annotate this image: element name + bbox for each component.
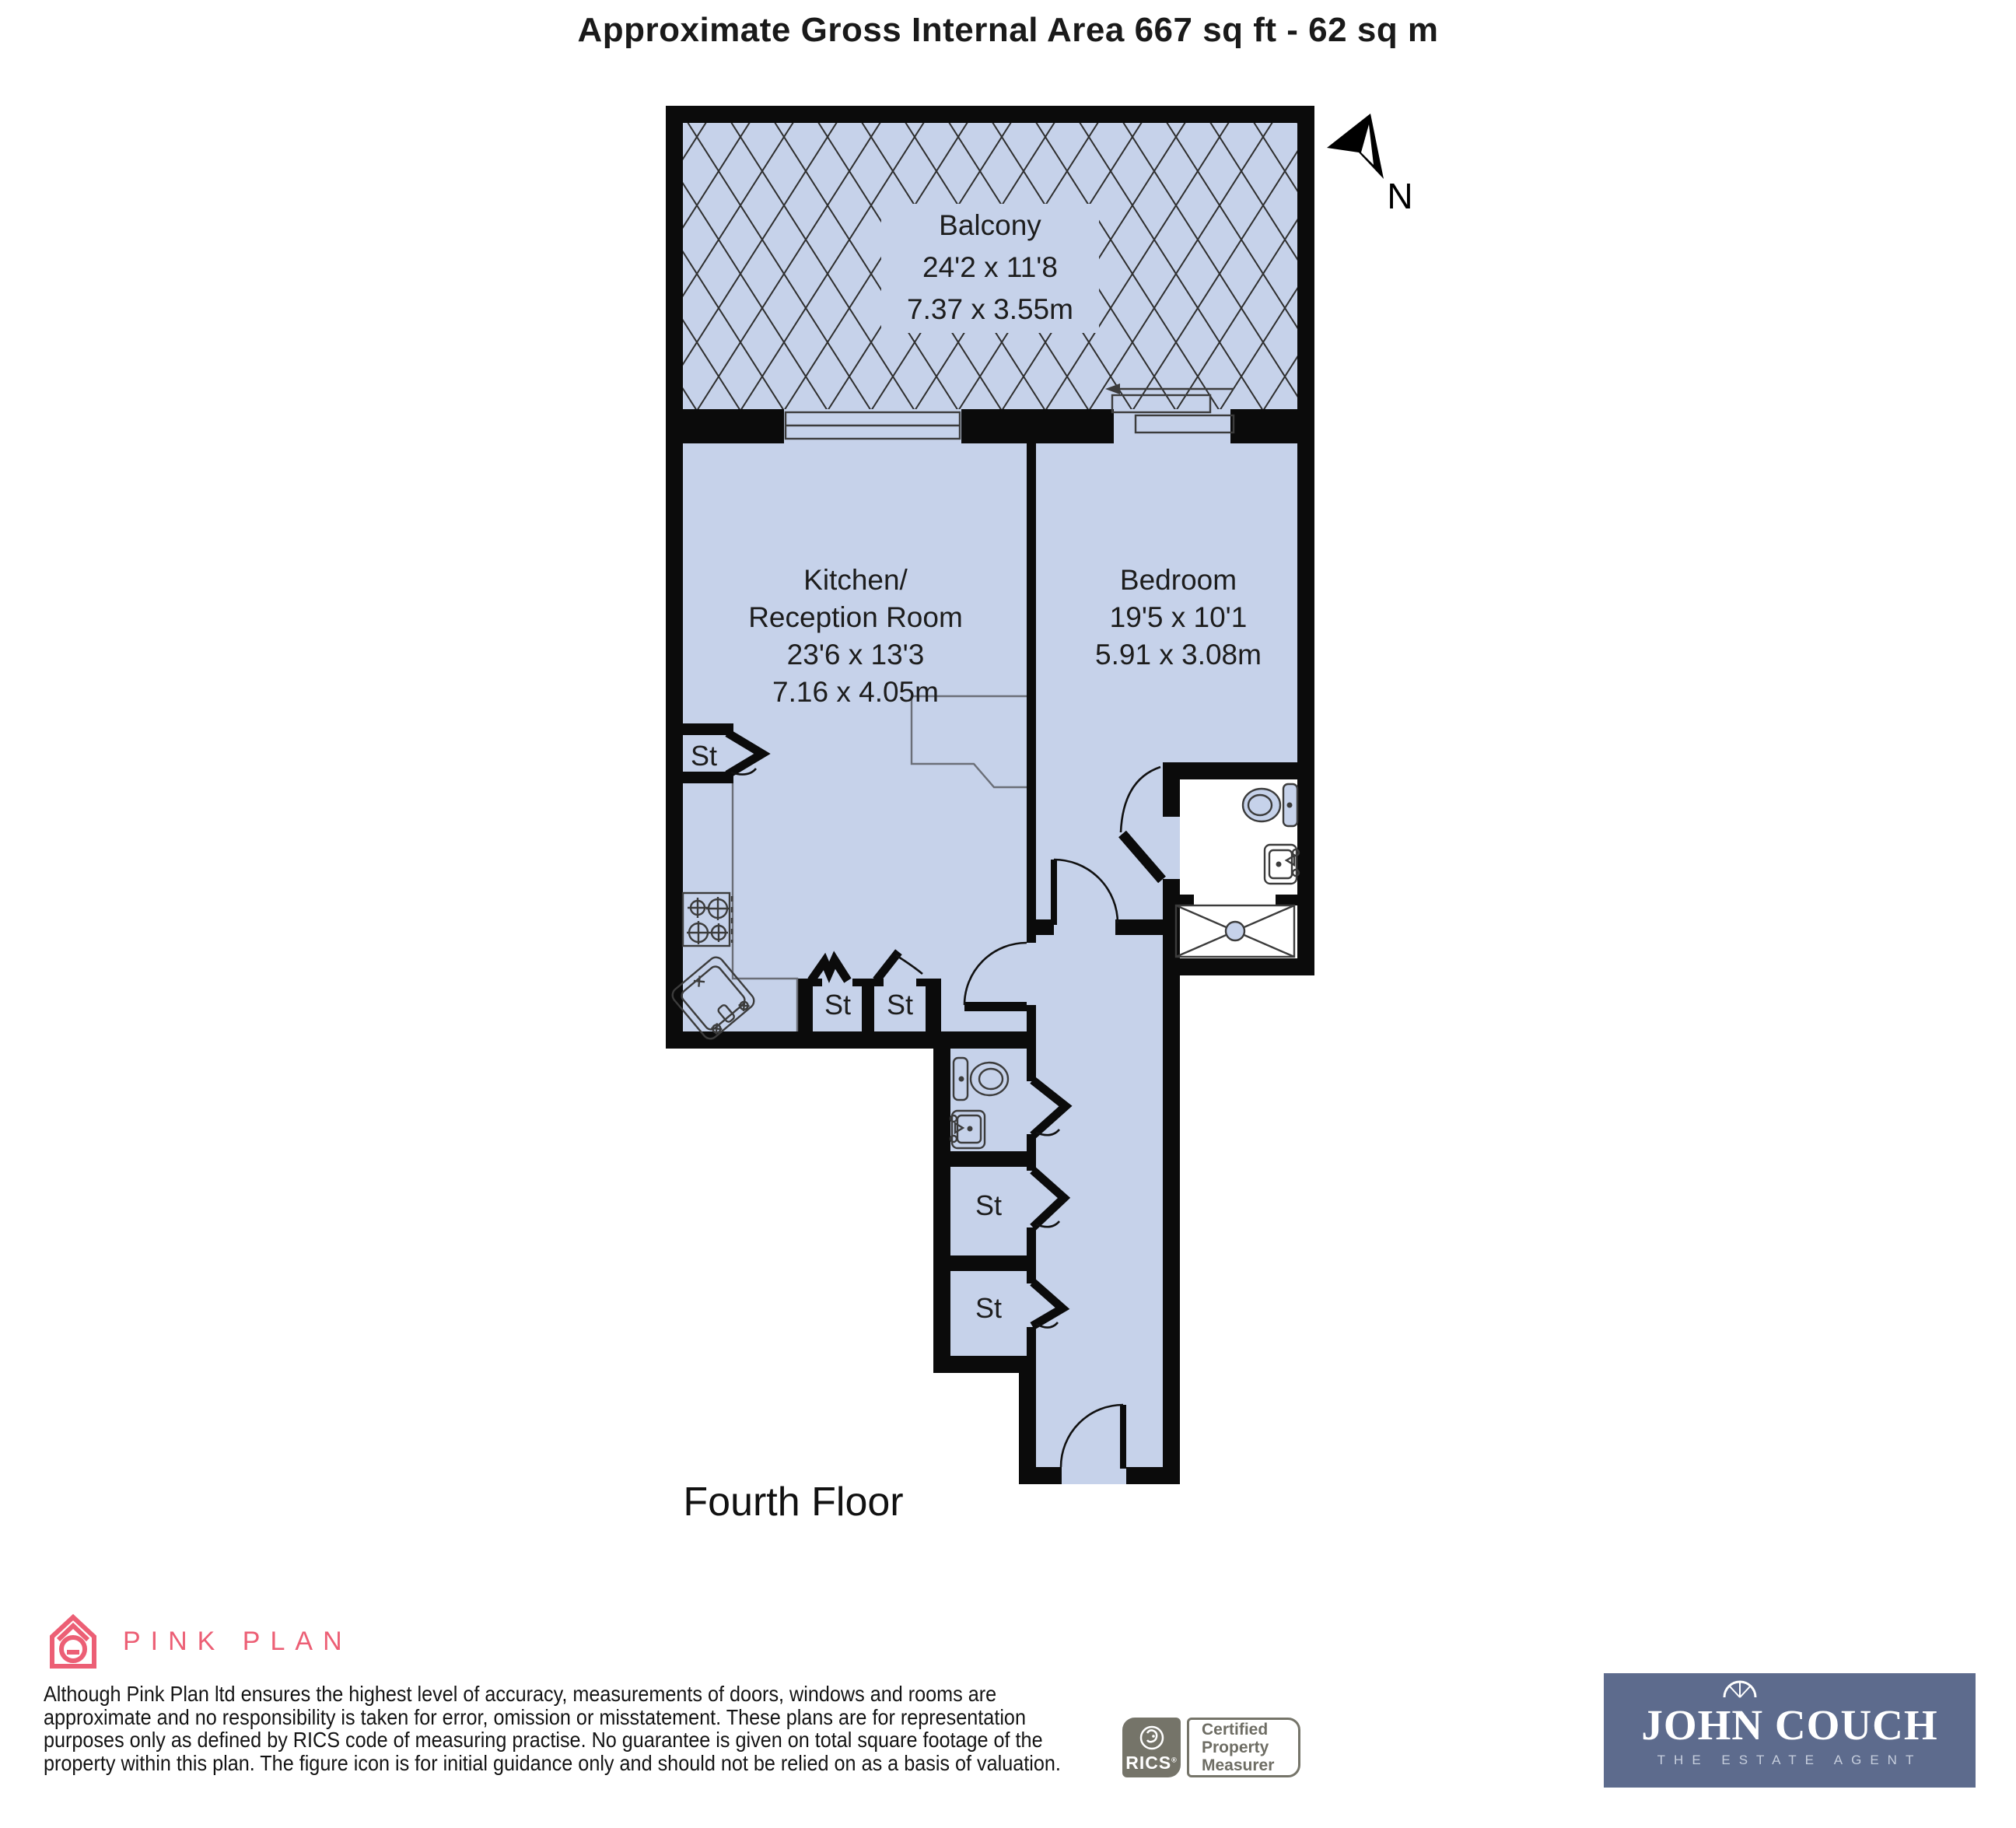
entrance-door-leaf (1120, 1405, 1126, 1469)
rics-logo: RICS® (1122, 1718, 1181, 1777)
toilet-icon (1243, 784, 1297, 826)
kitchen-dim-imperial: 23'6 x 13'3 (787, 639, 925, 671)
balcony-dim-metric: 7.37 x 3.55m (907, 293, 1073, 325)
rics-certification-text: Certified Property Measurer (1187, 1718, 1300, 1777)
storage-label: St (975, 1292, 1002, 1324)
disclaimer-line: approximate and no responsibility is tak… (44, 1706, 1061, 1729)
kitchen-door-leaf (964, 1002, 1027, 1011)
fanlight-icon (1722, 1679, 1758, 1698)
kitchen-dim-metric: 7.16 x 4.05m (772, 676, 939, 708)
floor-plan: Balcony 24'2 x 11'8 7.37 x 3.55m Kitchen… (0, 0, 2016, 1828)
pink-plan-brand: PINK PLAN (123, 1627, 352, 1657)
rics-line: Certified (1202, 1721, 1298, 1739)
storage-label: St (887, 989, 913, 1021)
john-couch-logo: JOHN COUCH THE ESTATE AGENT (1604, 1673, 1976, 1788)
balcony-name: Balcony (939, 209, 1041, 241)
rics-line: Property (1202, 1739, 1298, 1756)
kitchen-name-line1: Kitchen/ (803, 564, 908, 596)
rics-line: Measurer (1202, 1756, 1298, 1774)
floorplan-page: Approximate Gross Internal Area 667 sq f… (0, 0, 2016, 1828)
kitchen-name-line2: Reception Room (748, 601, 963, 633)
storage-label: St (975, 1189, 1002, 1221)
bedroom-name: Bedroom (1120, 564, 1237, 596)
agent-tagline: THE ESTATE AGENT (1657, 1753, 1923, 1768)
bedroom-dim-metric: 5.91 x 3.08m (1095, 639, 1262, 671)
shower-icon (1176, 905, 1294, 957)
disclaimer-line: purposes only as defined by RICS code of… (44, 1728, 1061, 1752)
disclaimer-line: property within this plan. The figure ic… (44, 1752, 1061, 1775)
agent-name: JOHN COUCH (1641, 1704, 1937, 1746)
sink-icon (1265, 845, 1299, 884)
pink-plan-logo: PINK PLAN (45, 1612, 352, 1671)
north-label: N (1387, 176, 1412, 216)
floor-label: Fourth Floor (683, 1480, 903, 1525)
balcony-dim-imperial: 24'2 x 11'8 (922, 251, 1058, 283)
rics-badge: RICS® Certified Property Measurer (1122, 1718, 1300, 1777)
rics-brand: RICS® (1125, 1754, 1178, 1772)
bedroom-dim-imperial: 19'5 x 10'1 (1110, 601, 1248, 633)
disclaimer-line: Although Pink Plan ltd ensures the highe… (44, 1683, 1061, 1706)
rics-lion-icon (1137, 1724, 1167, 1752)
disclaimer: Although Pink Plan ltd ensures the highe… (44, 1683, 1061, 1774)
pink-plan-house-icon (45, 1612, 101, 1671)
storage-label: St (691, 740, 717, 772)
storage-label: St (824, 989, 851, 1021)
north-arrow-icon: N (1327, 114, 1413, 216)
bedroom-door-leaf (1051, 860, 1057, 925)
